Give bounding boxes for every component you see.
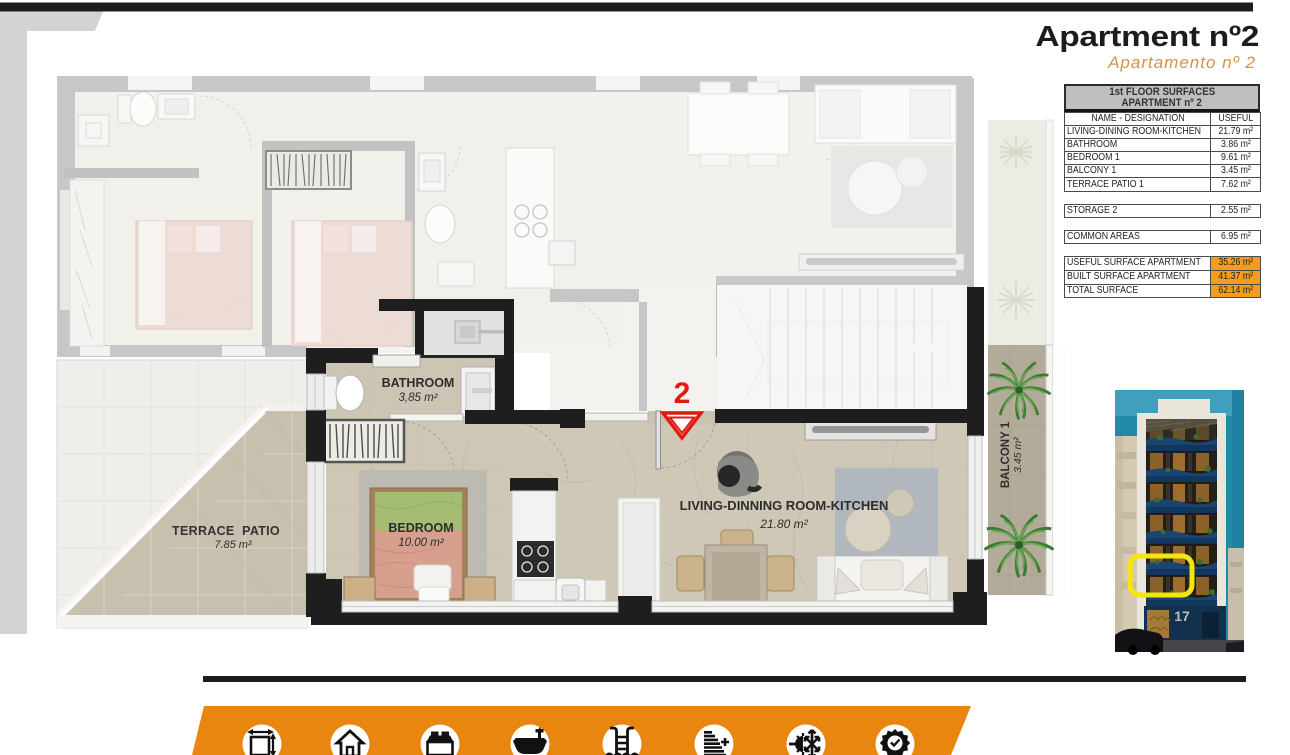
svg-text:3.45 m²: 3.45 m² xyxy=(1012,437,1024,473)
svg-text:BATHROOM: BATHROOM xyxy=(382,376,455,390)
svg-text:BEDROOM: BEDROOM xyxy=(388,521,453,535)
svg-text:17: 17 xyxy=(1174,608,1190,624)
svg-text:3,85 m²: 3,85 m² xyxy=(399,392,439,404)
svg-text:TERRACE PATIO: TERRACE PATIO xyxy=(172,524,280,538)
svg-text:LIVING-DINNING ROOM-KITCHEN: LIVING-DINNING ROOM-KITCHEN xyxy=(680,498,889,513)
svg-text:7.85 m²: 7.85 m² xyxy=(214,539,252,551)
svg-text:BALCONY 1: BALCONY 1 xyxy=(1000,421,1012,488)
svg-text:21.80 m²: 21.80 m² xyxy=(759,517,808,531)
svg-text:10.00 m²: 10.00 m² xyxy=(398,537,445,549)
svg-text:2: 2 xyxy=(674,377,691,410)
